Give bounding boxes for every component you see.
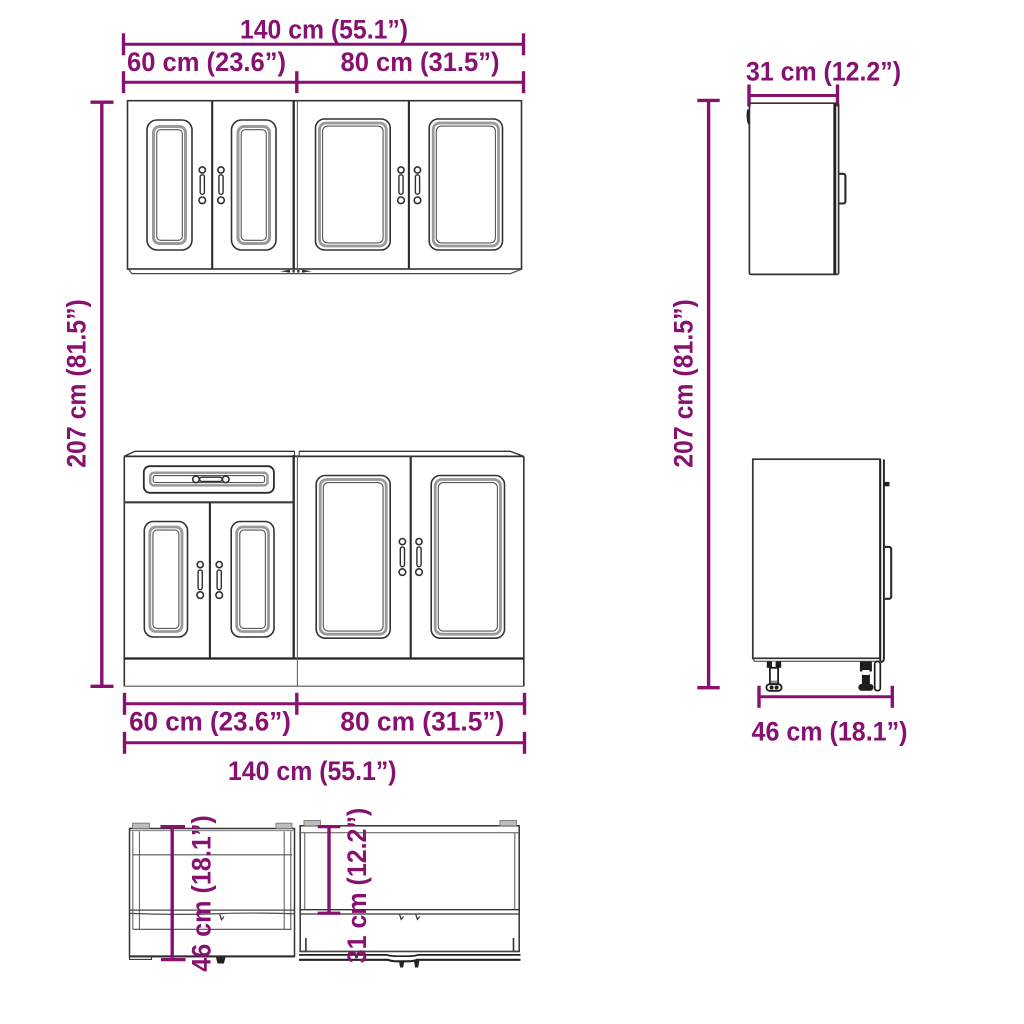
svg-text:80 cm (31.5”): 80 cm (31.5”) — [340, 707, 504, 737]
svg-text:140 cm (55.1”): 140 cm (55.1”) — [240, 15, 408, 45]
svg-text:31 cm (12.2”): 31 cm (12.2”) — [342, 808, 372, 964]
svg-text:31 cm (12.2”): 31 cm (12.2”) — [746, 57, 901, 87]
svg-text:80 cm (31.5”): 80 cm (31.5”) — [341, 47, 500, 77]
svg-text:60 cm (23.6”): 60 cm (23.6”) — [127, 47, 286, 77]
svg-text:46 cm (18.1”): 46 cm (18.1”) — [187, 815, 217, 972]
svg-text:60 cm (23.6”): 60 cm (23.6”) — [129, 707, 291, 737]
svg-text:140 cm (55.1”): 140 cm (55.1”) — [228, 756, 397, 786]
svg-text:207 cm (81.5”): 207 cm (81.5”) — [668, 299, 698, 468]
svg-text:46 cm (18.1”): 46 cm (18.1”) — [752, 717, 908, 747]
svg-text:207 cm (81.5”): 207 cm (81.5”) — [62, 299, 92, 468]
